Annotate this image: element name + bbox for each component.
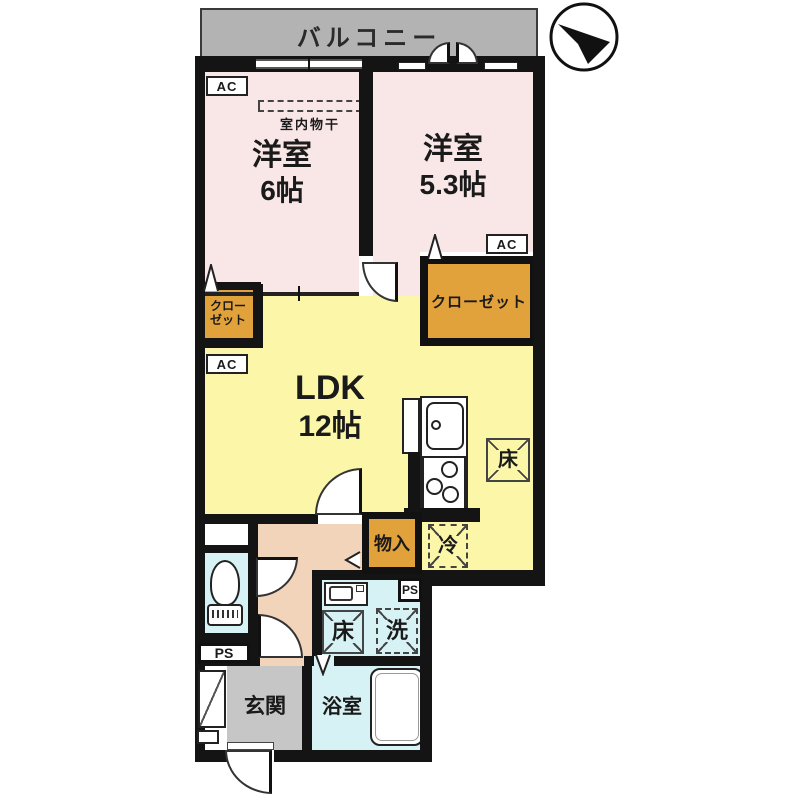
stove-burner-icon [426,478,443,495]
entrance-threshold [227,742,274,750]
vanity-detail [356,585,364,592]
shoe-cabinet [198,670,226,728]
folding-door-icon-closet6 [203,264,219,292]
ldk-label: LDK 12帖 [240,368,420,445]
indoor-drying-label: 室内物干 [258,114,362,133]
ps-label: PS [402,583,418,597]
wall-toilet-bottom [195,633,258,643]
wall-room6-ldk-line [205,292,359,296]
wall-ldk-hall [203,514,318,524]
doorway-ldk-hall [318,514,362,524]
toilet-tank-hatch [212,610,238,618]
ldk-name: LDK [240,368,420,409]
room6-name: 洋室 [205,138,359,174]
closet-right-label: クローゼット [431,291,527,312]
closet-left-line2: ゼット [210,314,246,328]
floor-hatch-ldk: 床 [486,438,530,482]
floor-hatch-washroom: 床 [322,610,364,654]
ps-label: PS [215,645,234,661]
pipe-space-toilet: PS [198,643,250,663]
wall-washroom-left [312,570,322,660]
folding-door-icon-storage [344,551,361,569]
closet-left-line1: クロー [210,300,246,314]
floor-hatch-label: 床 [496,450,520,470]
wall-bottom-left [195,750,227,762]
bathtub [370,668,424,746]
fridge-space: 冷 [428,524,468,568]
storage-box: 物入 [362,512,422,574]
indoor-drying-rack [258,100,362,112]
floor-hatch-label: 床 [330,621,356,643]
window-slot-right [484,62,518,70]
sliding-window-tick [308,56,310,72]
room53-label: 洋室 5.3帖 [373,132,533,202]
wall-toilet-top [195,545,258,553]
stove-burner-icon [442,486,459,503]
storage-label: 物入 [374,530,410,556]
washer-label: 洗 [384,620,410,642]
room6-size: 6帖 [205,174,359,208]
vanity-basin [329,586,353,601]
ac-label: AC [217,357,238,372]
toilet-icon [210,560,240,606]
fridge-label: 冷 [436,536,460,556]
pipe-space-washroom: PS [398,578,422,602]
ac-badge-room6: AC [206,76,248,96]
window-slot-left [398,62,426,70]
closet-right: クローゼット [420,256,538,346]
opening-tick [298,286,300,301]
north-arrow-icon [548,2,620,72]
wall-step [420,570,545,586]
shoe-cabinet-lower [197,730,219,744]
wall-closet-left-right [253,284,263,348]
bathtub-inner [375,673,419,741]
ac-label: AC [497,237,518,252]
ac-badge-room53: AC [486,234,528,254]
door-arc-front-entrance [225,750,272,794]
folding-door-icon-bath [314,654,332,676]
wall-bottom-right [274,750,432,762]
washer-space: 洗 [376,608,418,654]
ldk-size: 12帖 [240,409,420,445]
room6-label: 洋室 6帖 [205,138,359,208]
ac-label: AC [217,79,238,94]
floor-plan: バルコニー AC AC [0,0,800,800]
bathroom-label: 浴室 [310,690,374,719]
stove-burner-icon [441,461,458,478]
wall-closet-left-bottom [195,338,261,348]
room53-name: 洋室 [373,132,533,168]
wall-room-divider [359,56,373,256]
closet-left: クロー ゼット [203,290,253,338]
wall-right-upper [533,56,545,586]
balcony-label: バルコニー [200,18,538,53]
kitchen-faucet-icon [431,420,441,430]
room53-size: 5.3帖 [373,168,533,202]
folding-door-icon-closet53 [427,234,443,260]
entrance-label: 玄関 [227,690,303,720]
